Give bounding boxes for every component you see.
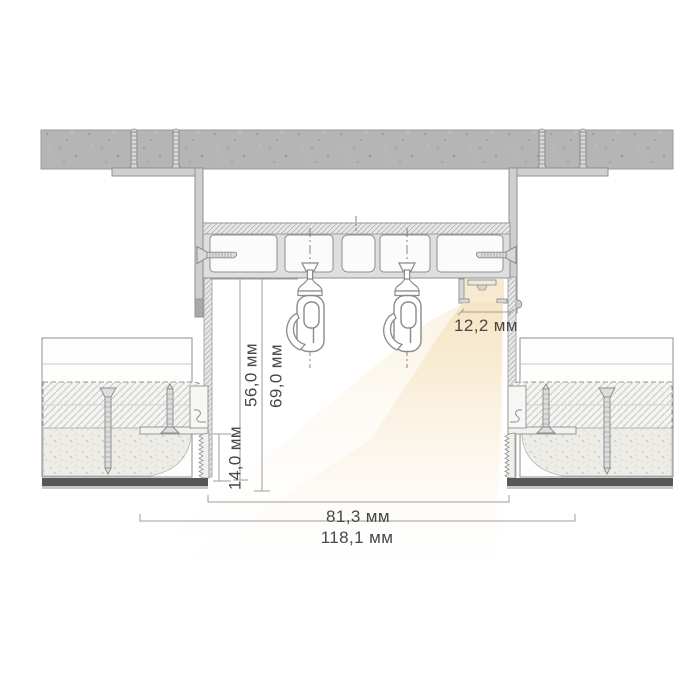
harpoon-teeth-right xyxy=(505,433,515,478)
curtain-track xyxy=(203,216,510,278)
led-chip xyxy=(477,285,487,290)
diagram-canvas: 56,0 мм 69,0 мм 14,0 мм 12,2 мм 81,3 мм … xyxy=(0,0,700,700)
harpoon-teeth-left xyxy=(199,433,209,478)
technical-drawing-page: 56,0 мм 69,0 мм 14,0 мм 12,2 мм 81,3 мм … xyxy=(0,0,700,700)
plaster-layer-left xyxy=(43,428,191,476)
led-profile xyxy=(459,279,507,303)
dimension-label-69: 69,0 мм xyxy=(266,344,285,408)
dimension-label-12: 12,2 мм xyxy=(454,316,518,335)
plaster-layer-right xyxy=(522,428,672,476)
suspended-ceiling-block-right xyxy=(505,338,673,489)
mounting-bracket-left xyxy=(112,168,203,317)
dimension-label-118: 118,1 мм xyxy=(321,528,394,547)
ceiling-edge-left xyxy=(42,478,208,486)
suspended-ceiling-block-left xyxy=(42,338,209,489)
led-strip xyxy=(468,280,496,285)
dimension-label-81: 81,3 мм xyxy=(326,507,390,526)
dimension-label-14: 14,0 мм xyxy=(225,426,244,490)
ceiling-edge-right xyxy=(507,478,673,486)
mounting-bracket-right xyxy=(509,168,608,313)
dimension-label-56: 56,0 мм xyxy=(241,343,260,407)
